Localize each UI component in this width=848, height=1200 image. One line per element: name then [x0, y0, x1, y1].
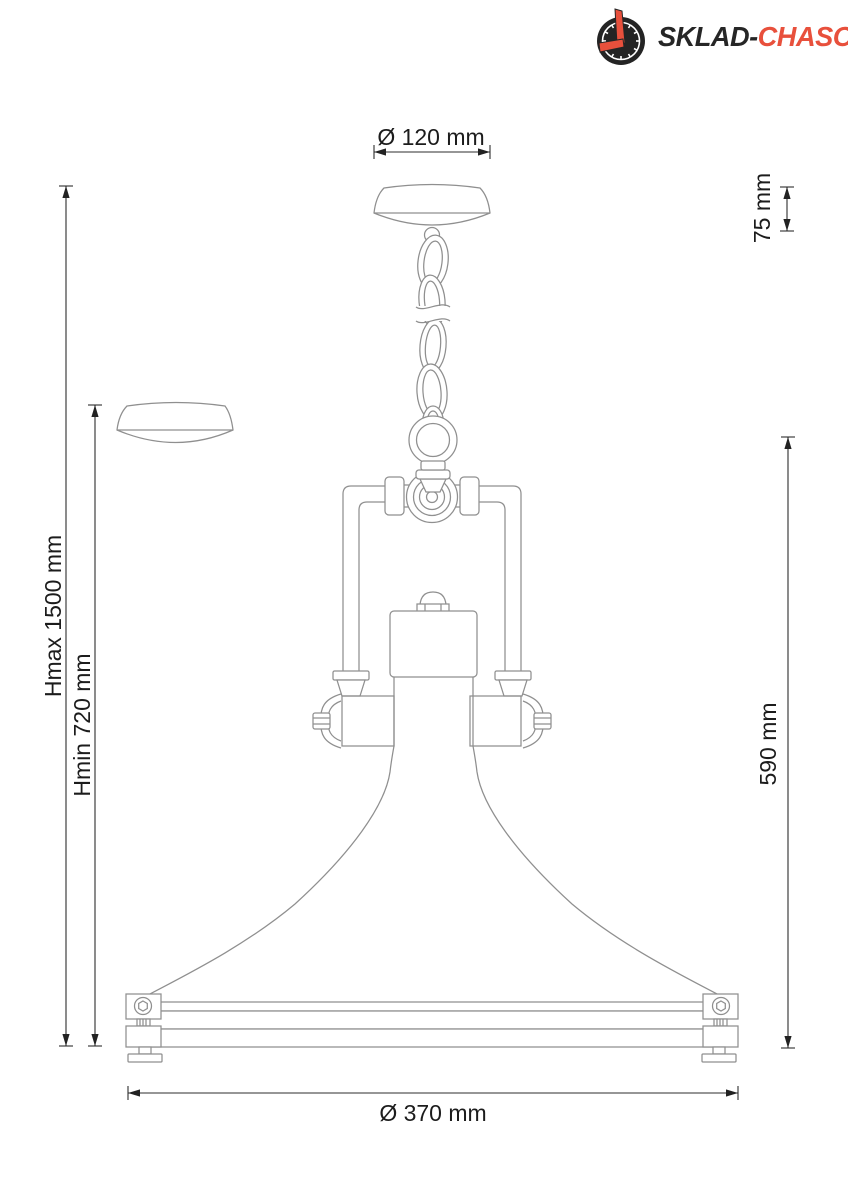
clamp-foot-left: [139, 1047, 151, 1054]
chain-break: [413, 305, 453, 323]
arrowhead-down: [91, 1034, 98, 1046]
dim-canopy-diameter: Ø 120 mm: [374, 124, 490, 159]
lamp-shade: [135, 746, 732, 1002]
pipe-flange-left: [385, 477, 404, 515]
arrowhead-up: [784, 437, 791, 449]
arrowhead-up: [783, 187, 790, 199]
arrowhead-right: [726, 1089, 738, 1096]
shade-rim: [145, 1002, 721, 1047]
arrowhead-left: [128, 1089, 140, 1096]
wing-nut-left: [313, 694, 341, 748]
clamp-foot-right: [713, 1047, 725, 1054]
arrowhead-down: [784, 1036, 791, 1048]
dim-lamp-height-label: 590 mm: [755, 702, 781, 785]
dim-max-height: Hmax 1500 mm: [40, 186, 73, 1046]
rod-fitting-right: [495, 671, 531, 696]
arrowhead-down: [783, 219, 790, 231]
rim-clamp-right: [702, 994, 738, 1062]
dim-max-height-label: Hmax 1500 mm: [40, 535, 66, 697]
arrowhead-down: [62, 1034, 69, 1046]
dim-min-height: Hmin 720 mm: [69, 405, 102, 1046]
wing-nut-right: [523, 694, 551, 748]
dim-shade-diameter-label: Ø 370 mm: [379, 1100, 486, 1126]
arrowhead-up: [62, 186, 69, 198]
pipe-flange-right: [460, 477, 479, 515]
spare-canopy: [117, 403, 233, 443]
product-dimension-sheet: SKLAD-CHASOV: [0, 0, 848, 1200]
dim-canopy-height-label: 75 mm: [749, 173, 775, 243]
arrowhead-up: [91, 405, 98, 417]
lamp-body: [390, 592, 477, 746]
lamp-technical-drawing: Ø 120 mm 75 mm Hmax 1500 mm H: [0, 0, 848, 1200]
dim-min-height-label: Hmin 720 mm: [69, 653, 95, 796]
rod-fitting-left: [333, 671, 369, 696]
ceiling-canopy: [374, 185, 490, 243]
cap-knob: [420, 592, 446, 605]
dim-shade-diameter: Ø 370 mm: [128, 1086, 738, 1126]
clamp-collar: [342, 696, 521, 746]
dim-canopy-diameter-label: Ø 120 mm: [377, 124, 484, 150]
dim-canopy-height: 75 mm: [749, 173, 794, 243]
dim-lamp-height: 590 mm: [755, 437, 795, 1048]
rim-clamp-left: [126, 994, 162, 1062]
suspension-chain: [413, 233, 453, 440]
hanging-ring: [409, 416, 457, 464]
